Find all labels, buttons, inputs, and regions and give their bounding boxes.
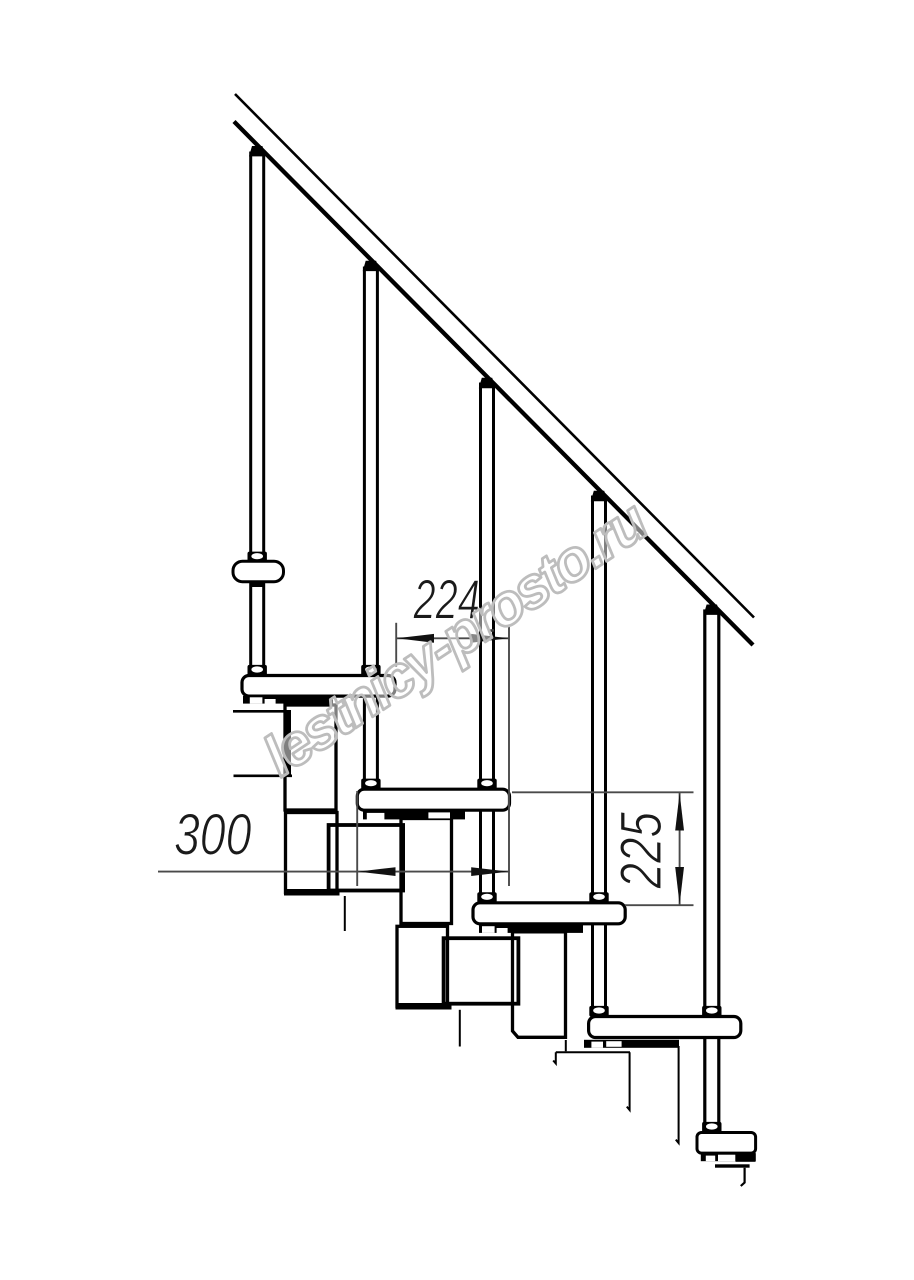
svg-text:225: 225 [610,811,674,889]
svg-text:300: 300 [174,803,251,868]
